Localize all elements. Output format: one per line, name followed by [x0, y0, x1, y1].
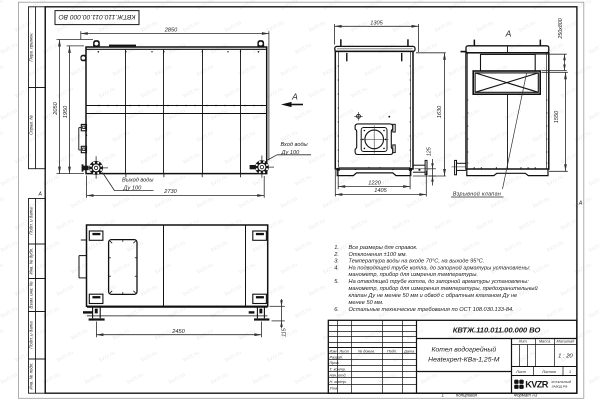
svg-text:менее 50 мм.: менее 50 мм. — [349, 300, 384, 306]
svg-text:Т. контр.: Т. контр. — [330, 368, 346, 372]
svg-text:Лист: Лист — [515, 370, 526, 374]
svg-text:125: 125 — [426, 146, 432, 156]
svg-text:Отклонения ±100 мм.: Отклонения ±100 мм. — [349, 252, 408, 258]
svg-text:Вход воды: Вход воды — [281, 142, 308, 148]
svg-text:Подп.: Подп. — [387, 349, 397, 353]
svg-text:Утв.: Утв. — [330, 386, 339, 390]
svg-text:1: 1 — [569, 370, 571, 374]
svg-text:манометр, прибор для измрения: манометр, прибор для измрения температур… — [349, 272, 478, 278]
svg-text:А: А — [578, 201, 583, 207]
svg-text:№ докум.: № докум. — [358, 349, 375, 353]
svg-text:ЗАВОД РФ: ЗАВОД РФ — [552, 385, 568, 389]
svg-text:1405: 1405 — [374, 188, 387, 194]
svg-text:Разраб.: Разраб. — [330, 355, 344, 359]
svg-text:Подп. и дата: Подп. и дата — [29, 207, 34, 235]
svg-text:2.: 2. — [333, 252, 339, 258]
svg-text:На подводящей трубе котла, до: На подводящей трубе котла, до запорной а… — [349, 264, 531, 271]
svg-text:А: А — [38, 192, 43, 198]
svg-text:Лист: Лист — [339, 349, 350, 353]
svg-text:1305: 1305 — [370, 21, 383, 27]
svg-text:КОТЕЛЬНЫЙ: КОТЕЛЬНЫЙ — [552, 380, 572, 384]
svg-text:2730: 2730 — [163, 189, 177, 195]
svg-text:2050: 2050 — [53, 101, 59, 115]
svg-text:Ду 100: Ду 100 — [281, 150, 301, 156]
svg-text:1550: 1550 — [554, 110, 560, 123]
svg-text:Нач. отд.: Нач. отд. — [330, 374, 347, 378]
svg-text:2850: 2850 — [164, 27, 178, 33]
svg-text:4.: 4. — [334, 265, 339, 271]
svg-text:Взрывной клапан: Взрывной клапан — [453, 191, 501, 198]
svg-text:КВТЖ.110.011.00.000 ВО: КВТЖ.110.011.00.000 ВО — [453, 325, 541, 334]
svg-text:КВТЖ.110.011.00.000 ВО: КВТЖ.110.011.00.000 ВО — [58, 13, 136, 20]
svg-text:Н. контр.: Н. контр. — [330, 380, 347, 384]
svg-text:Справ. №: Справ. № — [29, 115, 34, 135]
svg-text:Лит.: Лит. — [518, 340, 528, 344]
svg-text:Взам. инв. №: Взам. инв. № — [29, 281, 34, 308]
svg-text:А: А — [505, 29, 512, 39]
svg-text:Листов: Листов — [541, 370, 556, 374]
svg-text:3.: 3. — [334, 259, 339, 265]
svg-text:Ду 100: Ду 100 — [123, 186, 143, 192]
svg-text:1630: 1630 — [437, 105, 443, 118]
svg-text:250х800: 250х800 — [558, 18, 564, 39]
svg-text:Инв. № подл.: Инв. № подл. — [29, 362, 34, 389]
svg-text:KVZR: KVZR — [525, 380, 549, 390]
svg-text:1.: 1. — [334, 245, 339, 251]
svg-text:Масса: Масса — [539, 340, 550, 344]
svg-text:1950: 1950 — [63, 105, 69, 118]
svg-text:1 : 20: 1 : 20 — [558, 354, 573, 360]
svg-text:Выход воды: Выход воды — [122, 178, 153, 184]
svg-text:Пров.: Пров. — [330, 361, 340, 365]
svg-text:Остальные технические требован: Остальные технические требования по ОСТ … — [349, 307, 514, 313]
svg-text:Перв. примен.: Перв. примен. — [29, 32, 34, 61]
svg-text:Все размеры для справок.: Все размеры для справок. — [349, 245, 418, 251]
svg-text:6.: 6. — [334, 307, 339, 313]
svg-text:2450: 2450 — [171, 329, 185, 335]
svg-text:Heatexpert-КВа-1,25-М: Heatexpert-КВа-1,25-М — [428, 357, 500, 364]
svg-text:А: А — [291, 92, 298, 102]
svg-text:5.: 5. — [334, 279, 339, 285]
svg-text:Температура воды на входе 70°С: Температура воды на входе 70°С, на выход… — [349, 259, 485, 265]
svg-text:Масштаб: Масштаб — [557, 340, 576, 344]
svg-text:Формат А3: Формат А3 — [514, 393, 538, 398]
svg-text:Инв. № дубл.: Инв. № дубл. — [29, 247, 34, 274]
svg-text:1220: 1220 — [368, 181, 381, 187]
svg-text:На отводящей трубе котла, до з: На отводящей трубе котла, до запорной ар… — [349, 278, 530, 285]
svg-text:Котел водогрейный: Котел водогрейный — [431, 346, 496, 354]
svg-text:клапан Ду не менее 50 мм и обв: клапан Ду не менее 50 мм и обвод с обрат… — [349, 293, 518, 299]
svg-text:Копировал: Копировал — [456, 393, 478, 398]
svg-text:Изм: Изм — [329, 349, 336, 353]
svg-text:115: 115 — [282, 327, 288, 337]
svg-text:Дата: Дата — [403, 349, 414, 353]
svg-text:Подп. и дата: Подп. и дата — [29, 321, 34, 349]
svg-text:манометр, прибор для измерения: манометр, прибор для измерения температу… — [349, 285, 539, 292]
